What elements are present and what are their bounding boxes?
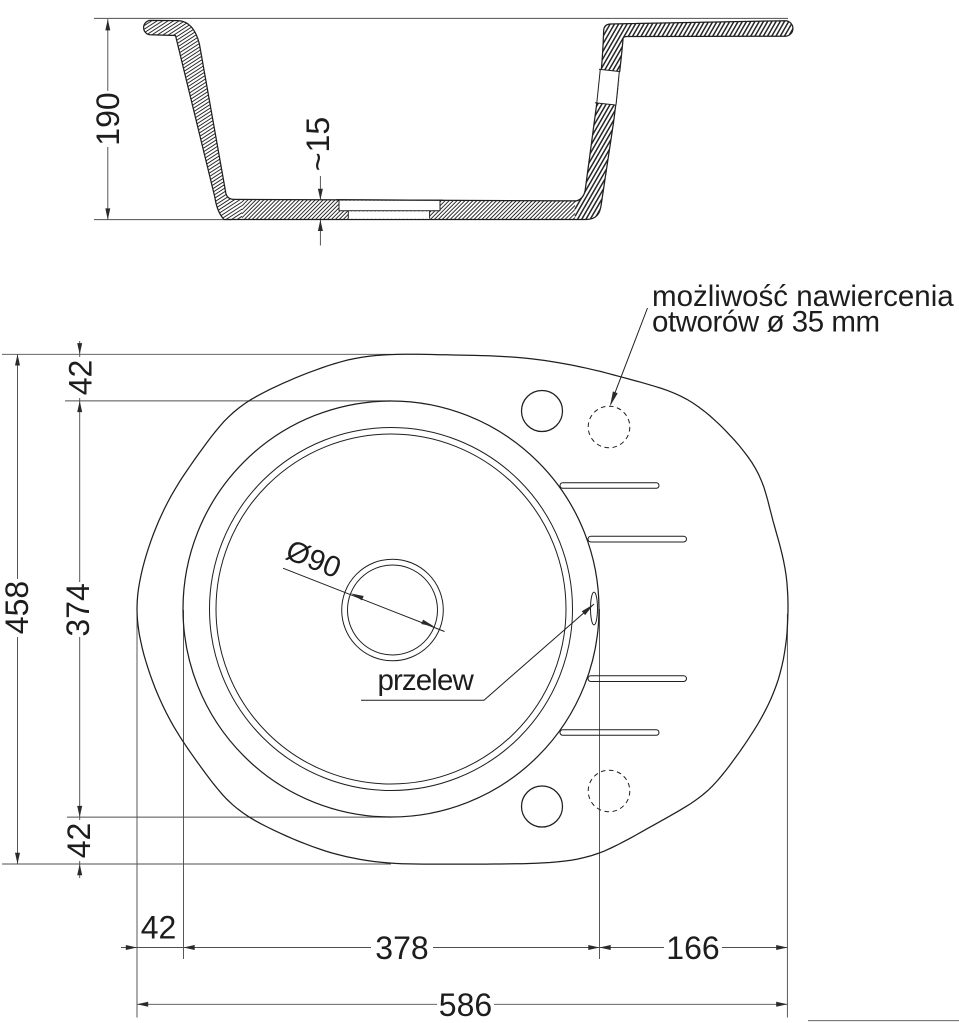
svg-text:otworów ø 35 mm: otworów ø 35 mm: [652, 306, 880, 339]
svg-text:458: 458: [0, 581, 35, 634]
svg-text:42: 42: [141, 910, 177, 946]
svg-text:Ø90: Ø90: [281, 534, 345, 585]
svg-text:166: 166: [666, 930, 719, 966]
svg-text:190: 190: [90, 92, 126, 145]
svg-text:374: 374: [60, 583, 96, 636]
svg-text:42: 42: [63, 360, 99, 396]
svg-text:42: 42: [61, 823, 97, 859]
svg-text:586: 586: [439, 987, 492, 1023]
svg-text:~15: ~15: [300, 117, 336, 171]
svg-text:378: 378: [375, 930, 428, 966]
svg-text:przelew: przelew: [378, 664, 475, 697]
